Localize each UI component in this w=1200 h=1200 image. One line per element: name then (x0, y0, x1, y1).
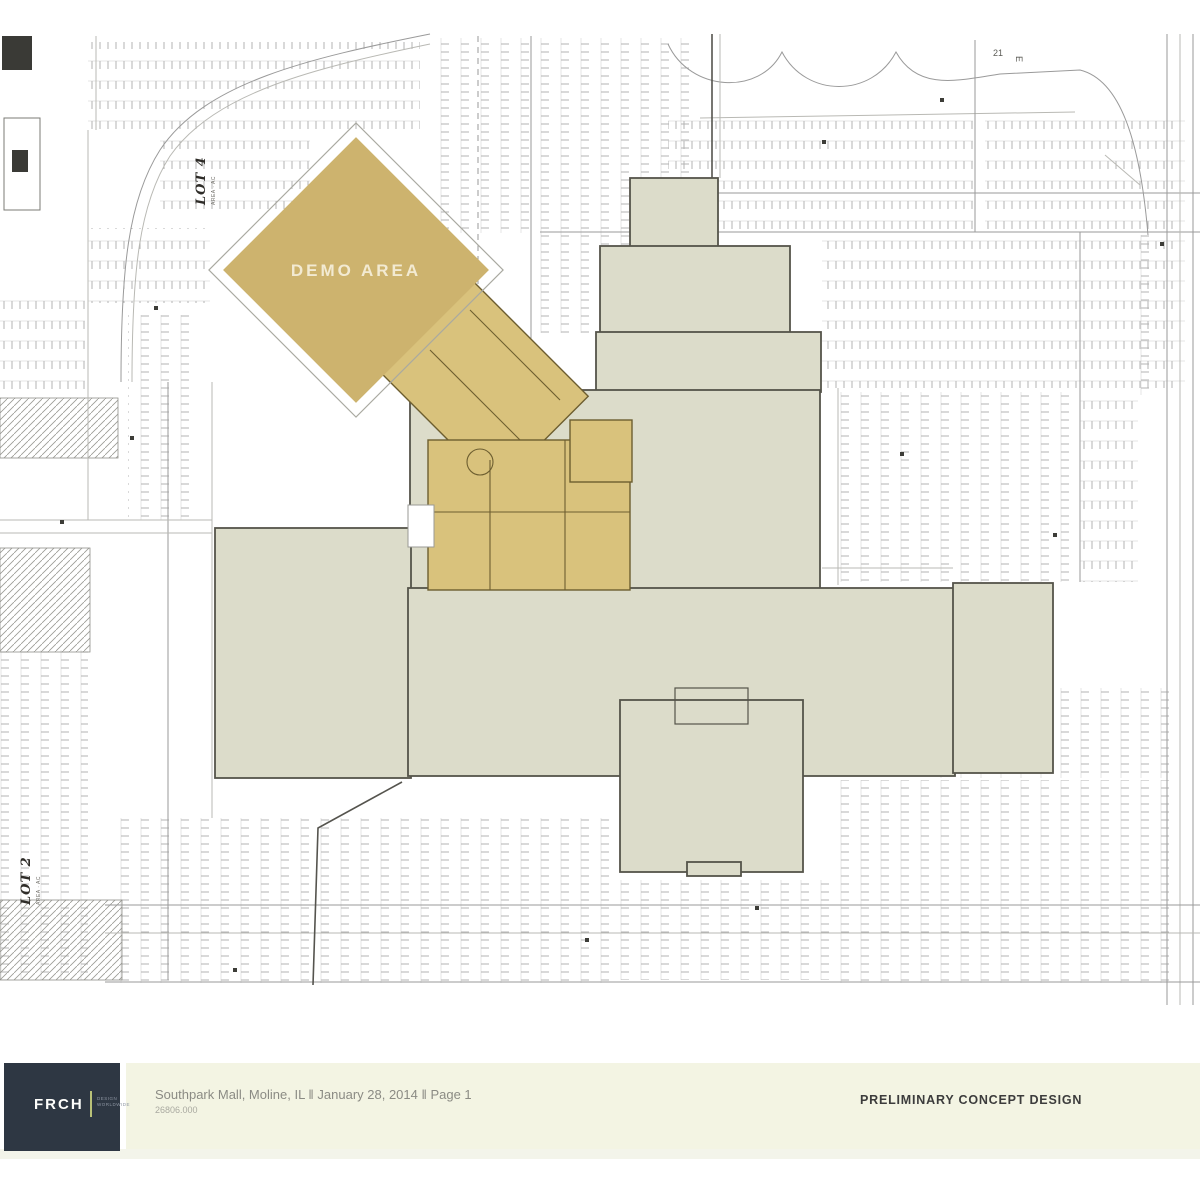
parking-zone (88, 228, 210, 303)
parking-zone (838, 392, 1078, 582)
corridor-east-block (570, 420, 632, 482)
parking-zone (1080, 392, 1138, 582)
preliminary-stamp: PRELIMINARY CONCEPT DESIGN (860, 1093, 1082, 1107)
hatched-parcel (0, 398, 118, 458)
south-anchor-notch (687, 862, 741, 876)
logo-tagline: DESIGN WORLDWIDE (97, 1096, 130, 1108)
north-anchor-base (596, 332, 821, 392)
site-plan-drawing: DEMO AREA LOT 4 AREA · AC LOT 2 AREA · A… (0, 0, 1200, 1063)
small-building (2, 36, 32, 70)
parking-zone (160, 135, 310, 210)
parking-zone (985, 120, 1185, 232)
south-anchor (620, 700, 803, 872)
outbuildings-layer (2, 36, 40, 210)
corridor-cutout (408, 505, 434, 547)
parking-zone (112, 818, 617, 983)
hatched-parcel (0, 900, 122, 980)
parking-zone (830, 780, 1180, 983)
hatched-parcel (0, 548, 90, 652)
survey-mark-1: 21 (993, 48, 1003, 58)
logo-divider (90, 1091, 92, 1117)
frch-logo: FRCH (34, 1096, 84, 1113)
demo-area-label: DEMO AREA (291, 261, 421, 280)
logo-tagline-line2: WORLDWIDE (97, 1102, 130, 1108)
parking-zone (0, 300, 85, 395)
project-title: Southpark Mall, Moline, IL ‖ January 28,… (155, 1087, 472, 1102)
lot4-sub: AREA · AC (211, 176, 217, 205)
parking-zone (620, 880, 830, 980)
site-plan-page: DEMO AREA LOT 4 AREA · AC LOT 2 AREA · A… (0, 0, 1200, 1200)
footer-title-bar: Southpark Mall, Moline, IL ‖ January 28,… (126, 1063, 1200, 1149)
lot2-sub: AREA · AC (36, 876, 42, 905)
north-anchor-upper (630, 178, 718, 248)
lot4-title: LOT 4 (194, 156, 209, 206)
frch-logo-box: FRCH DESIGN WORLDWIDE (4, 1063, 120, 1151)
lot2-title: LOT 2 (19, 856, 34, 906)
east-anchor (953, 583, 1053, 773)
survey-mark-2: E (1014, 56, 1024, 62)
parking-zone (822, 238, 1185, 388)
mall-west-wing (215, 528, 411, 778)
footer-shadow (0, 1149, 1200, 1159)
small-building (12, 150, 28, 172)
parking-zone (128, 315, 200, 520)
job-number: 26806.000 (155, 1105, 198, 1115)
parking-zone (88, 42, 420, 130)
north-anchor (600, 246, 790, 334)
parking-zone (1138, 235, 1156, 395)
